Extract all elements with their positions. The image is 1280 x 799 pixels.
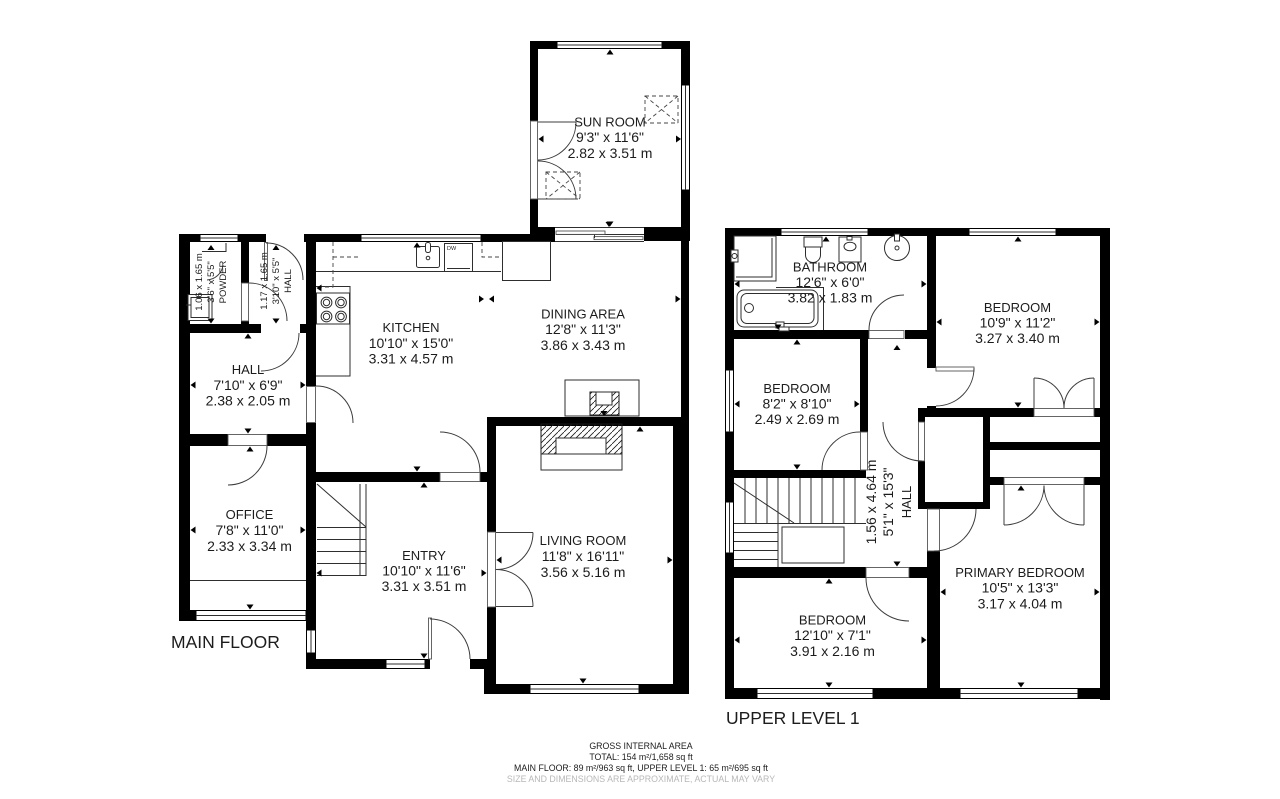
- svg-text:3.56 x 5.16 m: 3.56 x 5.16 m: [541, 564, 626, 580]
- svg-text:5'1" x 15'3": 5'1" x 15'3": [880, 467, 896, 536]
- svg-text:BEDROOM: BEDROOM: [763, 381, 830, 396]
- svg-text:2.38 x 2.05 m: 2.38 x 2.05 m: [206, 393, 291, 409]
- svg-text:10'10" x 15'0": 10'10" x 15'0": [369, 335, 454, 351]
- svg-text:SIZE AND DIMENSIONS ARE APPROX: SIZE AND DIMENSIONS ARE APPROXIMATE, ACT…: [507, 774, 775, 784]
- svg-text:11'8" x 16'11": 11'8" x 16'11": [542, 548, 625, 564]
- svg-text:HALL: HALL: [283, 269, 294, 293]
- svg-text:7'10" x 6'9": 7'10" x 6'9": [214, 377, 283, 393]
- svg-text:OFFICE: OFFICE: [226, 507, 274, 522]
- svg-text:HALL: HALL: [232, 362, 265, 377]
- svg-text:3.31 x 3.51 m: 3.31 x 3.51 m: [382, 578, 467, 594]
- svg-text:KITCHEN: KITCHEN: [382, 320, 439, 335]
- svg-text:9'3" x 11'6": 9'3" x 11'6": [576, 129, 644, 145]
- svg-text:ENTRY: ENTRY: [402, 548, 446, 563]
- svg-text:1.06 x 1.65 m: 1.06 x 1.65 m: [194, 253, 205, 311]
- svg-text:8'2" x 8'10": 8'2" x 8'10": [763, 396, 832, 412]
- svg-text:DINING AREA: DINING AREA: [541, 307, 625, 322]
- svg-text:10'5" x 13'3": 10'5" x 13'3": [982, 580, 1059, 596]
- svg-text:3'6" x 5'5": 3'6" x 5'5": [206, 261, 217, 303]
- svg-text:1.56 x 4.64 m: 1.56 x 4.64 m: [863, 460, 879, 545]
- svg-text:12'6" x 6'0": 12'6" x 6'0": [796, 274, 865, 290]
- svg-text:TOTAL: 154 m²/1,658 sq ft: TOTAL: 154 m²/1,658 sq ft: [589, 752, 693, 762]
- svg-text:1.17 x 1.65 m: 1.17 x 1.65 m: [259, 252, 270, 310]
- svg-text:10'9" x 11'2": 10'9" x 11'2": [980, 315, 1056, 331]
- svg-text:PRIMARY BEDROOM: PRIMARY BEDROOM: [955, 565, 1085, 580]
- svg-text:12'10" x 7'1": 12'10" x 7'1": [794, 627, 871, 643]
- svg-text:3.86 x 3.43 m: 3.86 x 3.43 m: [541, 337, 626, 353]
- svg-text:BEDROOM: BEDROOM: [799, 613, 866, 628]
- svg-text:SUN ROOM: SUN ROOM: [574, 115, 646, 130]
- svg-text:UPPER LEVEL 1: UPPER LEVEL 1: [726, 708, 860, 728]
- svg-text:2.49 x 2.69 m: 2.49 x 2.69 m: [755, 411, 840, 427]
- svg-text:LIVING ROOM: LIVING ROOM: [540, 533, 627, 548]
- svg-text:BEDROOM: BEDROOM: [984, 300, 1051, 315]
- svg-text:3.31 x 4.57 m: 3.31 x 4.57 m: [369, 351, 454, 367]
- svg-text:GROSS INTERNAL AREA: GROSS INTERNAL AREA: [589, 741, 692, 751]
- svg-text:MAIN FLOOR: 89 m²/963 sq ft, U: MAIN FLOOR: 89 m²/963 sq ft, UPPER LEVEL…: [514, 763, 768, 773]
- svg-text:2.33 x 3.34 m: 2.33 x 3.34 m: [207, 538, 292, 554]
- svg-text:3.82 x 1.83 m: 3.82 x 1.83 m: [788, 290, 873, 306]
- svg-text:POWDER: POWDER: [218, 260, 229, 303]
- svg-text:12'8" x 11'3": 12'8" x 11'3": [545, 321, 621, 337]
- svg-text:BATHROOM: BATHROOM: [793, 260, 867, 275]
- svg-text:10'10" x 11'6": 10'10" x 11'6": [382, 563, 466, 579]
- svg-text:DW: DW: [447, 246, 457, 252]
- svg-text:3.17 x 4.04 m: 3.17 x 4.04 m: [978, 595, 1063, 611]
- svg-text:3.27 x 3.40 m: 3.27 x 3.40 m: [975, 330, 1060, 346]
- svg-text:3.91 x 2.16 m: 3.91 x 2.16 m: [790, 643, 875, 659]
- svg-text:HALL: HALL: [899, 486, 914, 519]
- svg-text:MAIN FLOOR: MAIN FLOOR: [171, 632, 280, 652]
- svg-text:2.82 x 3.51 m: 2.82 x 3.51 m: [568, 145, 653, 161]
- svg-text:3'10" x 5'5": 3'10" x 5'5": [271, 258, 282, 305]
- svg-text:7'8" x 11'0": 7'8" x 11'0": [216, 522, 284, 538]
